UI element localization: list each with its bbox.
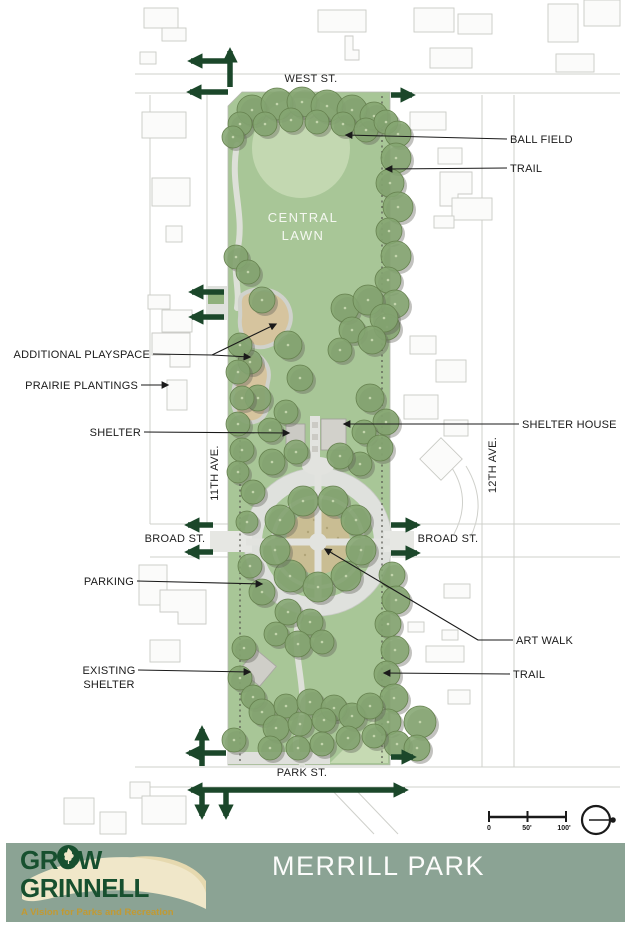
label-west-st: WEST ST. [285, 73, 338, 85]
scale-tick-0: 0 [487, 825, 491, 832]
site-plan-map: WEST ST. PARK ST. BROAD ST. BROAD ST. 11… [0, 0, 625, 843]
scale-tick-50: 50' [522, 825, 532, 832]
label-existing-shelter-2: SHELTER [83, 679, 134, 691]
label-central-lawn-1: CENTRAL [268, 210, 338, 225]
plan-title: MERRILL PARK [272, 851, 485, 882]
label-parking: PARKING [84, 576, 134, 588]
label-shelter-house: SHELTER HOUSE [522, 419, 617, 431]
logo-tagline: A Vision for Parks and Recreation [21, 907, 174, 918]
grow-grinnell-logo: GROW GRINNELL A Vision for Parks and Rec… [14, 843, 214, 922]
label-trail-lower: TRAIL [513, 669, 545, 681]
logo-word-grinnell: GRINNELL [20, 875, 149, 901]
label-additional-playspace: ADDITIONAL PLAYSPACE [14, 349, 150, 361]
label-park-st: PARK ST. [277, 767, 328, 779]
oak-leaf-icon [57, 845, 80, 868]
label-ball-field: BALL FIELD [510, 134, 573, 146]
label-prairie-plantings: PRAIRIE PLANTINGS [25, 380, 138, 392]
label-art-walk: ART WALK [516, 635, 573, 647]
north-arrow-icon [582, 806, 616, 834]
label-broad-st-west: BROAD ST. [145, 533, 206, 545]
label-central-lawn-2: LAWN [282, 228, 325, 243]
merrill-park-plan-page: WEST ST. PARK ST. BROAD ST. BROAD ST. 11… [0, 0, 625, 926]
label-11th-ave: 11TH AVE. [209, 445, 221, 500]
label-12th-ave: 12TH AVE. [487, 437, 499, 493]
label-trail-upper: TRAIL [510, 163, 542, 175]
label-existing-shelter-1: EXISTING [83, 665, 136, 677]
label-shelter: SHELTER [90, 427, 141, 439]
label-broad-st-east: BROAD ST. [418, 533, 479, 545]
scale-bar: 0 50' 100' [487, 811, 571, 832]
title-bar: MERRILL PARK GROW GRINNELL A Vision for … [6, 843, 625, 922]
scale-tick-100: 100' [557, 825, 571, 832]
